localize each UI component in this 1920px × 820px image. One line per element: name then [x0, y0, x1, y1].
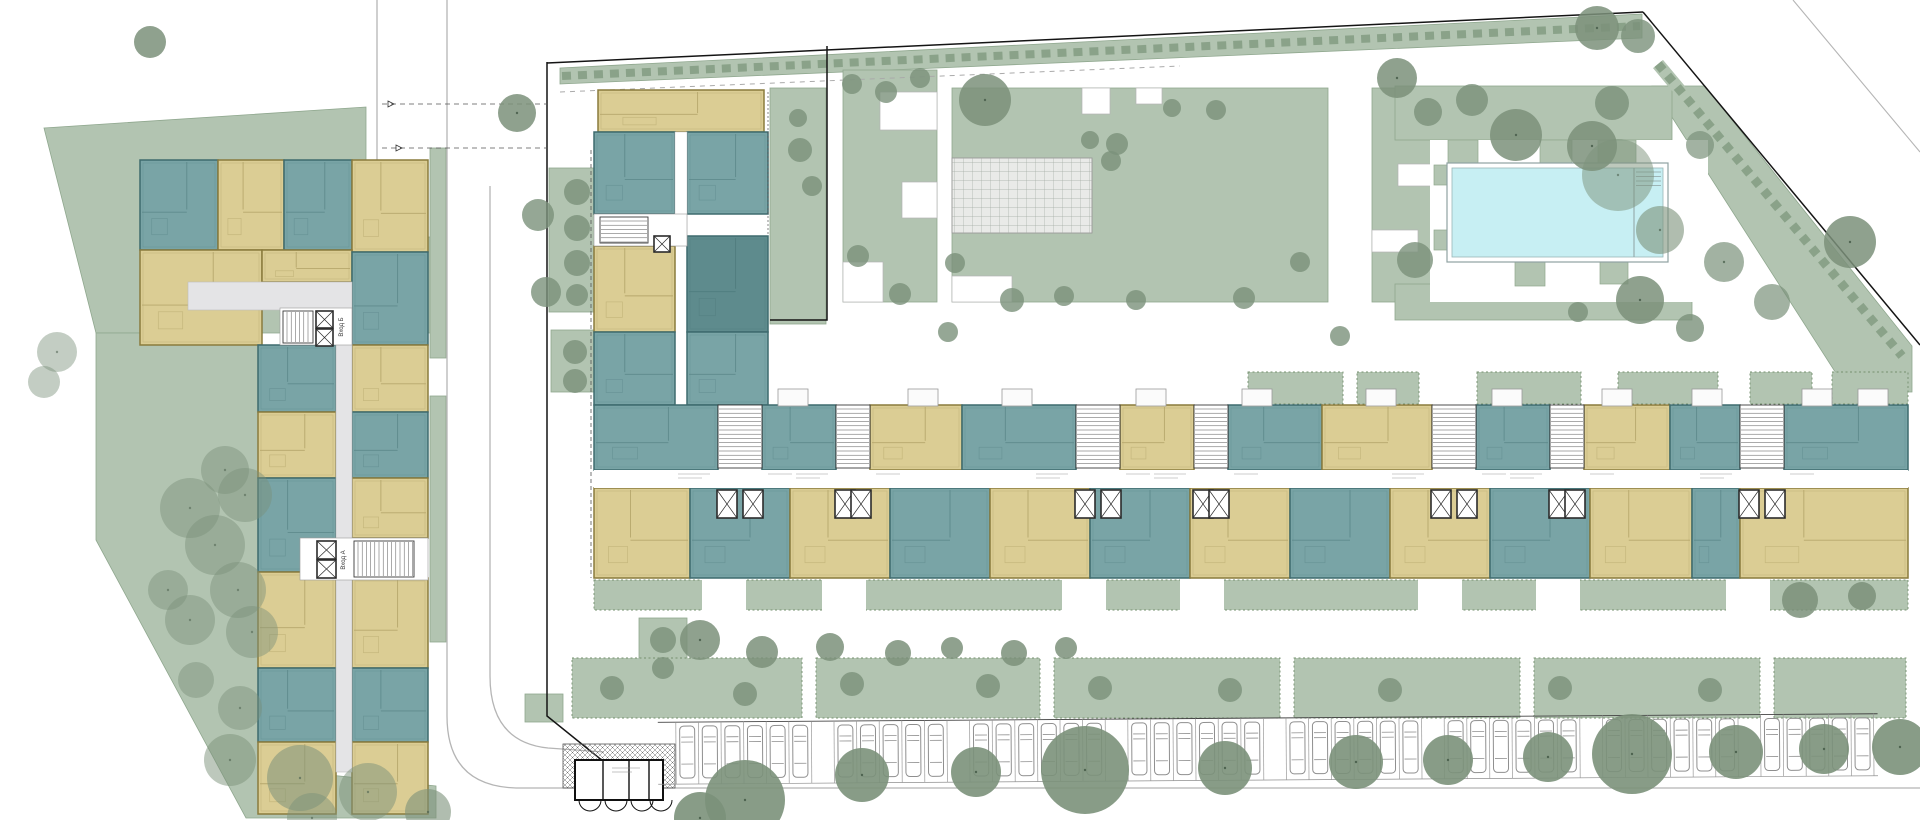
tree — [840, 672, 864, 696]
car-body — [1019, 724, 1034, 776]
tree — [1621, 19, 1655, 53]
apartment-unit-teal — [352, 412, 428, 478]
tree-center-dot — [1849, 241, 1851, 243]
tree — [1548, 676, 1572, 700]
balcony — [1136, 389, 1166, 406]
tree-center-dot — [1617, 174, 1619, 176]
entrance-label: Вход А — [341, 550, 347, 569]
apartment-unit-teal — [352, 252, 428, 345]
tree — [1206, 100, 1226, 120]
apartment-unit-teal — [962, 405, 1076, 470]
tree — [564, 250, 590, 276]
apartment-unit-yellow — [218, 160, 284, 250]
tree-center-dot — [1723, 261, 1725, 263]
tree-center-dot — [1659, 229, 1661, 231]
path-notch — [843, 262, 883, 302]
stair-core — [836, 405, 870, 468]
tree — [1101, 151, 1121, 171]
tree-center-dot — [239, 707, 241, 709]
lawn-tooth — [1600, 262, 1628, 284]
balcony — [1366, 389, 1396, 406]
tree — [1782, 582, 1818, 618]
tree-center-dot — [189, 507, 191, 509]
apartment-unit-teal — [1476, 405, 1550, 470]
apartment-unit-teal — [1228, 405, 1322, 470]
apartment-unit-teal — [762, 405, 836, 470]
apartment-unit-yellow — [262, 250, 352, 282]
tree-center-dot — [744, 799, 746, 801]
walkway-gap — [1536, 578, 1580, 614]
apartment-unit-teal — [284, 160, 352, 250]
garden-plot — [1774, 658, 1906, 718]
garden-plot — [594, 580, 1908, 610]
parked-car — [1697, 719, 1712, 771]
balcony — [908, 389, 938, 406]
tree — [1290, 252, 1310, 272]
tree-center-dot — [214, 544, 216, 546]
apartment-unit-teal — [258, 345, 336, 412]
courtyard-lawn — [525, 694, 563, 722]
path-notch — [1136, 88, 1162, 104]
tree — [522, 199, 554, 231]
balcony — [1002, 389, 1032, 406]
tree — [976, 674, 1000, 698]
tree-center-dot — [1547, 756, 1549, 758]
apartment-unit-yellow — [352, 578, 428, 668]
parked-car — [770, 725, 785, 777]
car-body — [928, 724, 943, 776]
site-plan-canvas: Вход БВход А — [0, 0, 1920, 820]
shelter-door-arc — [605, 800, 627, 811]
tree-center-dot — [1224, 767, 1226, 769]
apartment-unit-teal — [890, 488, 990, 578]
tree — [1126, 290, 1146, 310]
parked-car — [1290, 722, 1305, 774]
tree — [889, 283, 911, 305]
path-notch — [902, 182, 937, 218]
parked-car — [1674, 719, 1689, 771]
apartment-unit-teal — [1670, 405, 1740, 470]
parked-car — [1019, 724, 1034, 776]
balcony — [1242, 389, 1272, 406]
stair-core — [1550, 405, 1584, 468]
balcony — [1858, 389, 1888, 406]
tree — [1000, 288, 1024, 312]
tree-center-dot — [1596, 27, 1598, 29]
tree — [1754, 284, 1790, 320]
lawn-tooth — [1515, 262, 1545, 286]
tree-center-dot — [427, 811, 429, 813]
tree — [1054, 286, 1074, 306]
tree — [842, 74, 862, 94]
garden-plot — [1054, 658, 1280, 718]
tree-center-dot — [1735, 751, 1737, 753]
tree — [1456, 84, 1488, 116]
tree — [941, 637, 963, 659]
parked-car — [1764, 718, 1779, 770]
tree — [847, 245, 869, 267]
apartment-unit-teal — [594, 405, 718, 470]
tree-center-dot — [861, 774, 863, 776]
stair-core — [1740, 405, 1784, 468]
stair-core — [1194, 405, 1228, 468]
courtyard-lawn — [430, 148, 446, 358]
tree — [531, 277, 561, 307]
tree — [1848, 582, 1876, 610]
tree — [1595, 86, 1629, 120]
tree-center-dot — [299, 777, 301, 779]
tree — [563, 369, 587, 393]
parked-car — [680, 726, 695, 778]
paved-plaza-grid — [952, 158, 1092, 233]
car-body — [702, 726, 717, 778]
apartment-unit-yellow — [594, 246, 675, 332]
apartment-unit-yellow — [594, 488, 690, 578]
tree-center-dot — [1639, 299, 1641, 301]
car-body — [1290, 722, 1305, 774]
parked-car — [1177, 723, 1192, 775]
tree — [1414, 98, 1442, 126]
tree — [1397, 242, 1433, 278]
tree-center-dot — [1515, 134, 1517, 136]
waste-shelter-group — [563, 744, 675, 811]
balcony — [1492, 389, 1522, 406]
tree-center-dot — [56, 351, 58, 353]
parked-car — [1312, 722, 1327, 774]
tree — [1698, 678, 1722, 702]
car-body — [906, 724, 921, 776]
walkway-gap — [1180, 578, 1224, 614]
tree — [1001, 640, 1027, 666]
apartment-unit-yellow — [598, 90, 764, 132]
tree — [563, 340, 587, 364]
apartment-unit-teal — [140, 160, 218, 250]
apartment-unit-teal — [687, 132, 768, 214]
tree — [564, 179, 590, 205]
tree-center-dot — [984, 99, 986, 101]
tree — [564, 215, 590, 241]
apartment-unit-yellow — [258, 412, 336, 478]
apartment-unit-teal — [594, 332, 675, 405]
tree-center-dot — [237, 589, 239, 591]
tree-center-dot — [1447, 759, 1449, 761]
apartment-unit-yellow — [1590, 488, 1692, 578]
tree — [566, 284, 588, 306]
car-body — [1493, 720, 1508, 772]
walkway-gap — [1726, 578, 1770, 614]
apartment-unit-teal — [690, 488, 790, 578]
apartment-unit-teal — [352, 668, 428, 742]
car-body — [1312, 722, 1327, 774]
tree — [650, 627, 676, 653]
tree-center-dot — [516, 112, 518, 114]
tree — [816, 633, 844, 661]
tree — [652, 657, 674, 679]
tree — [789, 109, 807, 127]
tree — [1163, 99, 1181, 117]
waste-shelter — [575, 760, 663, 800]
car-body — [770, 725, 785, 777]
tree — [1218, 678, 1242, 702]
apartment-unit-teal — [687, 332, 768, 405]
walkway-gap — [1418, 578, 1462, 614]
tree — [1088, 676, 1112, 700]
tree — [1676, 314, 1704, 342]
tree-center-dot — [1899, 746, 1901, 748]
apartment-unit-yellow — [1584, 405, 1670, 470]
apartment-unit-teal — [1692, 488, 1740, 578]
car-body — [793, 725, 808, 777]
apartment-unit-teal — [1290, 488, 1390, 578]
apartment-unit-teal — [594, 132, 675, 214]
car-body — [1697, 719, 1712, 771]
stair-core — [1076, 405, 1120, 468]
tree-center-dot — [224, 469, 226, 471]
tree-center-dot — [699, 639, 701, 641]
tree-center-dot — [1631, 753, 1633, 755]
tree — [28, 366, 60, 398]
car-body — [1471, 720, 1486, 772]
walkway-gap — [702, 578, 746, 614]
car-body — [1403, 721, 1418, 773]
parked-car — [1471, 720, 1486, 772]
walkway-gap — [822, 578, 866, 614]
tree — [600, 676, 624, 700]
apartment-unit-yellow — [1120, 405, 1194, 470]
garden-plot — [1294, 658, 1520, 718]
car-body — [680, 726, 695, 778]
tree — [134, 26, 166, 58]
tree-center-dot — [167, 589, 169, 591]
shelter-door-arc — [579, 800, 601, 811]
tree — [1055, 637, 1077, 659]
parked-car — [906, 724, 921, 776]
corridor — [594, 470, 1908, 488]
path-notch — [1082, 88, 1110, 114]
car-body — [1154, 723, 1169, 775]
tree — [910, 68, 930, 88]
tree — [1330, 326, 1350, 346]
tree-center-dot — [244, 494, 246, 496]
parked-car — [1493, 720, 1508, 772]
apartment-unit-yellow — [1322, 405, 1432, 470]
car-body — [1132, 723, 1147, 775]
tree — [178, 662, 214, 698]
stair-core — [1432, 405, 1476, 468]
parked-car — [1132, 723, 1147, 775]
tree — [1378, 678, 1402, 702]
tree-center-dot — [367, 791, 369, 793]
lawn-tooth — [1434, 230, 1448, 250]
balcony — [1602, 389, 1632, 406]
balcony — [1692, 389, 1722, 406]
tree — [1568, 302, 1588, 322]
tree — [945, 253, 965, 273]
balcony — [1802, 389, 1832, 406]
tree-center-dot — [311, 817, 313, 819]
tree — [875, 81, 897, 103]
tree-center-dot — [189, 619, 191, 621]
apartment-unit-yellow — [870, 405, 962, 470]
car-body — [1764, 718, 1779, 770]
tree-center-dot — [1396, 77, 1398, 79]
apartment-unit-teal — [1784, 405, 1908, 470]
tree-center-dot — [251, 631, 253, 633]
tree-center-dot — [699, 817, 701, 819]
car-body — [1674, 719, 1689, 771]
parked-car — [1154, 723, 1169, 775]
tree — [1686, 131, 1714, 159]
stair-core — [718, 405, 762, 468]
walkway-gap — [1062, 578, 1106, 614]
car-body — [1855, 718, 1870, 770]
tree — [1081, 131, 1099, 149]
tree — [885, 640, 911, 666]
parked-car — [1855, 718, 1870, 770]
tree — [802, 176, 822, 196]
tree — [788, 138, 812, 162]
courtyard-lawn — [430, 396, 446, 642]
balcony — [778, 389, 808, 406]
apartment-unit-yellow — [352, 160, 428, 252]
parked-car — [928, 724, 943, 776]
parked-car — [793, 725, 808, 777]
apartment-unit-teal — [258, 668, 336, 742]
stair-core — [283, 311, 313, 343]
apartment-unit-dark-teal — [687, 236, 768, 332]
tree — [1233, 287, 1255, 309]
tree-center-dot — [975, 771, 977, 773]
tree-center-dot — [1823, 748, 1825, 750]
road-edge-line — [1793, 0, 1920, 152]
tree-center-dot — [229, 759, 231, 761]
north-verge — [560, 14, 1642, 84]
apartment-unit-yellow — [352, 478, 428, 538]
site-plan-drawing: Вход БВход А — [0, 0, 1920, 820]
tree — [938, 322, 958, 342]
tree-center-dot — [1591, 145, 1593, 147]
parked-car — [702, 726, 717, 778]
car-body — [1177, 723, 1192, 775]
apartment-unit-yellow — [352, 345, 428, 412]
tree-center-dot — [1084, 769, 1086, 771]
tree — [1872, 719, 1920, 775]
corridor — [188, 282, 352, 310]
tree — [746, 636, 778, 668]
entrance-label: Вход Б — [339, 317, 345, 336]
parked-car — [1403, 721, 1418, 773]
tree-center-dot — [1355, 761, 1357, 763]
stair-core — [354, 541, 414, 577]
tree — [733, 682, 757, 706]
